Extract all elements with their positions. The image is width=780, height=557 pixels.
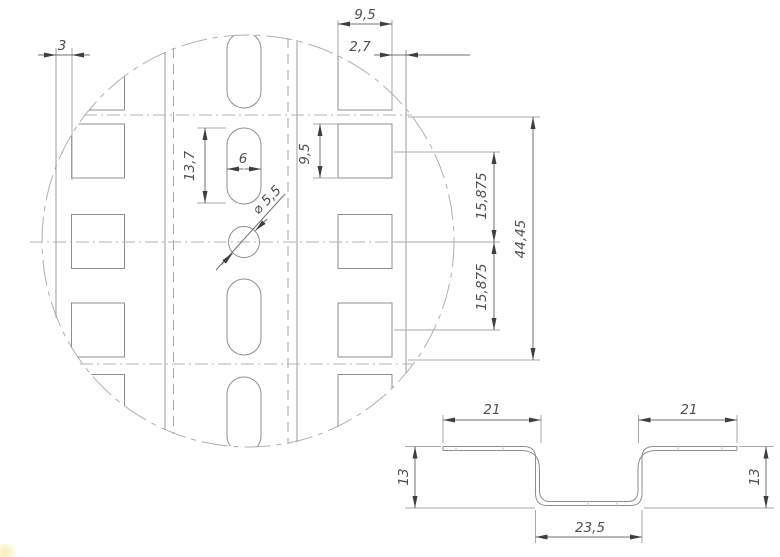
dim-label: 9,5 (297, 143, 313, 164)
dim-label: 21 (483, 402, 500, 418)
dim-label: 21 (680, 402, 697, 418)
dim-left-offset: 3 (38, 38, 90, 55)
dim-label: 13,7 (182, 151, 198, 181)
dim-label: 15,875 (474, 263, 490, 310)
square-hole (72, 124, 125, 178)
dim-square-height: 9,5 (297, 124, 338, 178)
dim-label: 3 (58, 38, 67, 54)
dim-label: 13 (747, 468, 763, 485)
dim-hole-diameter: ⌀ 5,5 (216, 183, 285, 270)
dim-label: 2,7 (349, 39, 371, 55)
dim-slot-length: 13,7 (182, 128, 226, 203)
drawing-canvas: 3 9,5 2,7 13,7 6 (0, 0, 780, 557)
profile-outer-line (443, 447, 737, 506)
dim-flange-left: 21 (443, 402, 541, 443)
cad-drawing: 3 9,5 2,7 13,7 6 (0, 0, 780, 557)
section-view: 21 21 13 13 23,5 (396, 402, 774, 543)
detail-view: 3 9,5 2,7 13,7 6 (30, 7, 540, 453)
square-hole (338, 303, 392, 357)
dim-hole-pitch: 15,875 15,875 (394, 152, 500, 330)
square-hole (338, 124, 392, 178)
dim-label: 9,5 (354, 7, 375, 23)
dim-label: 6 (239, 151, 248, 167)
dim-group-length: 44,45 (408, 117, 540, 360)
dim-label: 15,875 (474, 172, 490, 219)
dim-right-offset: 2,7 (349, 39, 470, 55)
square-hole (72, 303, 125, 357)
dim-label: 44,45 (513, 220, 529, 259)
slot-hole (227, 32, 261, 108)
profile-inner-line (443, 451, 737, 502)
slot-hole (227, 279, 261, 355)
dim-slot-width: 6 (227, 151, 261, 169)
dim-height-left: 13 (396, 447, 535, 509)
dim-square-width: 9,5 (338, 7, 392, 110)
square-hole (338, 375, 392, 429)
square-hole (338, 56, 392, 110)
dim-label: 13 (396, 468, 412, 485)
dim-height-right: 13 (644, 447, 774, 509)
slot-hole (227, 377, 261, 453)
dim-label: 23,5 (575, 520, 605, 536)
dim-channel-width: 23,5 (536, 510, 643, 543)
corner-artifact (0, 544, 16, 557)
dim-flange-right: 21 (639, 402, 738, 443)
